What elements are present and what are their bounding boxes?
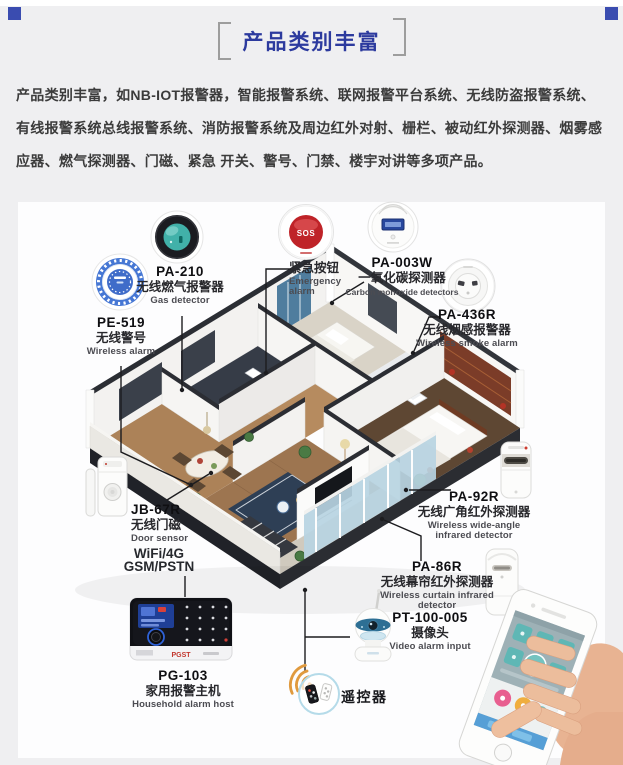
product-model: PA-436R [407,307,527,322]
product-label-pg103: PG-103 家用报警主机 Household alarm host [123,668,243,710]
product-label-pt100: PT-100-005 摄像头 Video alarm input [370,610,490,652]
product-name-cn: 无线燃气报警器 [120,280,240,295]
product-name-en: Household alarm host [123,700,243,711]
product-label-pa86r: PA-86R 无线幕帘红外探测器 Wireless curtain infrar… [377,559,497,612]
pg103-brand-text: PGST [171,652,191,659]
product-label-pa436r: PA-436R 无线烟感报警器 Wireless smoke alarm [407,307,527,349]
product-name-cn: 无线幕帘红外探测器 [377,575,497,590]
product-model: PA-92R [414,489,534,504]
product-model: PA-86R [377,559,497,574]
product-label-pa92r: PA-92R 无线广角红外探测器 Wireless wide-angle inf… [414,489,534,542]
product-model: PG-103 [123,668,243,683]
product-model: PA-210 [120,264,240,279]
product-name-cn: 无线烟感报警器 [407,323,527,338]
product-name-en: Gas detector [120,296,240,307]
product-model: JB-67R [131,502,241,517]
product-name-cn: 摄像头 [370,626,490,641]
connectivity-label: WiFi/4G GSM/PSTN [99,547,219,573]
product-name-en: Wireless smoke alarm [407,339,527,350]
product-name-en: Wireless curtain infrared detector [370,591,504,612]
remote-control-label: 遥控器 [341,687,388,707]
product-label-pa003w: PA-003W 一氧化碳探测器 Carbon monoxide detector… [330,255,474,297]
product-name-cn: 一氧化碳探测器 [330,271,474,286]
product-name-en: Door sensor [131,534,241,545]
product-name-en: Wireless wide-angle infrared detector [422,521,526,542]
remote-control-group [286,662,339,714]
product-label-pa210: PA-210 无线燃气报警器 Gas detector [120,264,240,306]
product-label-pe519: PE-519 无线警号 Wireless alarm [61,315,181,357]
product-name-cn: 无线门磁 [131,518,241,533]
intro-paragraph: 产品类别丰富，如NB-IOT报警器，智能报警系统、联网报警平台系统、无线防盗报警… [16,79,608,178]
product-label-jb67r: JB-67R 无线门磁 Door sensor [131,502,241,544]
device-pg103-alarm-host: PGST [130,598,232,660]
product-name-cn: 家用报警主机 [123,684,243,699]
product-name-cn: 无线警号 [61,331,181,346]
product-model: PA-003W [330,255,474,270]
device-pa003w-co-detector [368,202,418,252]
product-model: PE-519 [61,315,181,330]
device-pa210-gas-detector [151,211,203,263]
product-name-en: Carbon monoxide detectors [330,287,474,298]
bracket-right-icon [393,18,406,56]
section-title-text: 产品类别丰富 [243,26,381,56]
product-name-en: Wireless alarm [61,347,181,358]
section-title: 产品类别丰富 [0,22,623,60]
product-model: PT-100-005 [370,610,490,625]
bracket-left-icon [218,22,231,60]
product-name-en: Video alarm input [370,642,490,653]
device-jb67r-door-sensor [86,457,127,516]
connectivity-line2: GSM/PSTN [99,560,219,573]
device-sos-emergency-button: SOS [279,205,334,260]
sos-button-text: SOS [297,229,316,238]
product-name-cn: 无线广角红外探测器 [414,505,534,520]
page-root: 产品类别丰富 产品类别丰富，如NB-IOT报警器，智能报警系统、联网报警平台系统… [0,0,623,765]
